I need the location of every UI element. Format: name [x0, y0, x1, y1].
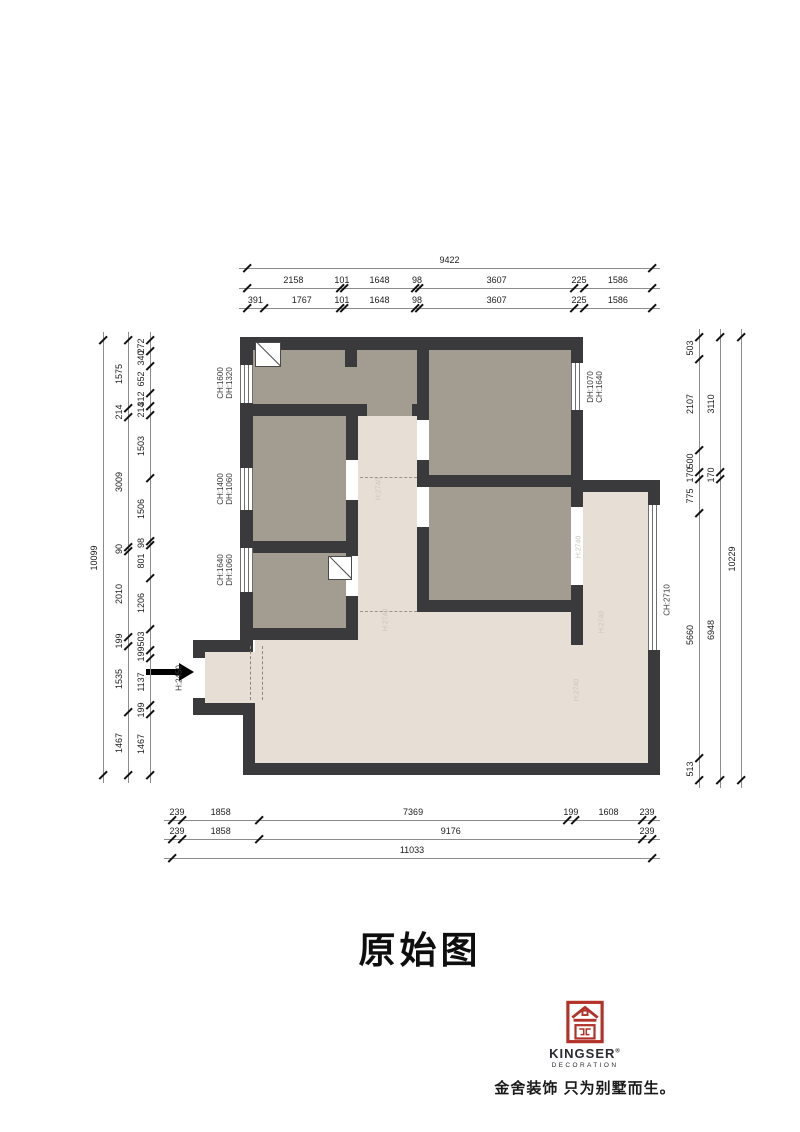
- brand-subtitle: DECORATION: [460, 1062, 710, 1069]
- brand-slogan: 金舍装饰 只为别墅而生。: [460, 1077, 710, 1098]
- dim-value: 214: [136, 403, 146, 418]
- dim-value: 3110: [706, 395, 716, 414]
- dim-value: 6948: [706, 620, 716, 640]
- dim-value: 1467: [114, 733, 124, 753]
- dim-value: 199: [563, 807, 578, 817]
- dim-value: 1586: [608, 295, 628, 305]
- dim-value: 1586: [608, 275, 628, 285]
- dim-value: 1648: [369, 275, 389, 285]
- dim-value: 10099: [89, 545, 99, 570]
- dim-value: 11033: [400, 845, 424, 855]
- dim-value: 10229: [727, 546, 737, 571]
- brand-name-text: KINGSER: [549, 1046, 615, 1061]
- dim-value: 1467: [136, 734, 146, 754]
- dim-value: 503: [685, 340, 695, 355]
- dim-value: 225: [571, 295, 586, 305]
- dim-value: 239: [640, 826, 655, 836]
- dim-value: 801: [136, 554, 146, 569]
- dim-value: 199: [136, 702, 146, 717]
- dim-value: 391: [248, 295, 263, 305]
- dim-value: 199: [136, 646, 146, 661]
- dim-value: 5660: [685, 625, 695, 645]
- dim-value: 98: [412, 275, 422, 285]
- dim-value: 170: [706, 468, 716, 483]
- dim-value: 90: [114, 544, 124, 554]
- dim-baseline: [239, 308, 660, 309]
- dim-value: 239: [169, 826, 184, 836]
- drawing-title: 原始图: [300, 920, 540, 974]
- dim-baseline: [150, 332, 151, 783]
- dim-value: 1648: [369, 295, 389, 305]
- dim-value: 3607: [487, 275, 507, 285]
- dim-value: 239: [169, 807, 184, 817]
- dim-value: 1137: [136, 672, 146, 691]
- dim-value: 1858: [211, 826, 231, 836]
- dim-value: 500: [685, 453, 695, 468]
- dim-baseline: [741, 329, 742, 788]
- dim-value: 101: [334, 295, 349, 305]
- kingser-logo-icon: [566, 1000, 604, 1044]
- dim-value: 3009: [114, 472, 124, 492]
- dim-value: 7369: [403, 807, 423, 817]
- dim-baseline: [128, 332, 129, 783]
- dim-value: 170: [685, 468, 695, 483]
- dim-value: 9176: [441, 826, 461, 836]
- dim-value: 239: [640, 807, 655, 817]
- dim-value: 101: [334, 275, 349, 285]
- dim-value: 2158: [283, 275, 303, 285]
- dim-value: 1506: [136, 499, 146, 519]
- dim-value: 513: [685, 761, 695, 776]
- dim-value: 652: [136, 372, 146, 387]
- dim-value: 98: [412, 295, 422, 305]
- dim-value: 1575: [114, 364, 124, 384]
- dim-value: 98: [136, 538, 146, 548]
- dim-baseline: [164, 858, 660, 859]
- dim-baseline: [164, 839, 660, 840]
- floorplan-sheet: CH:1600 DH:1320 CH:1400 DH:1060 CH:1640 …: [0, 0, 800, 1132]
- dim-value: 9422: [439, 255, 459, 265]
- dim-value: 1608: [598, 807, 618, 817]
- dim-baseline: [239, 268, 660, 269]
- dim-value: 2010: [114, 584, 124, 604]
- dim-value: 199: [114, 634, 124, 649]
- dim-baseline: [699, 329, 700, 788]
- dim-value: 340: [136, 351, 146, 366]
- dim-value: 1535: [114, 669, 124, 689]
- brand-reg-mark: ®: [615, 1049, 620, 1055]
- dim-value: 1858: [211, 807, 231, 817]
- brand-block: KINGSER® DECORATION 金舍装饰 只为别墅而生。: [460, 1000, 710, 1098]
- dim-value: 1206: [136, 593, 146, 613]
- dim-value: 225: [571, 275, 586, 285]
- brand-name: KINGSER®: [460, 1046, 710, 1061]
- dim-value: 503: [136, 632, 146, 647]
- dim-baseline: [720, 329, 721, 788]
- dim-value: 1503: [136, 436, 146, 456]
- dim-value: 775: [685, 488, 695, 503]
- dim-value: 214: [114, 405, 124, 420]
- dim-value: 3607: [487, 295, 507, 305]
- dim-baseline: [239, 288, 660, 289]
- dim-value: 1767: [292, 295, 312, 305]
- dim-baseline: [164, 820, 660, 821]
- dim-baseline: [103, 332, 104, 783]
- dim-value: 2107: [685, 394, 695, 414]
